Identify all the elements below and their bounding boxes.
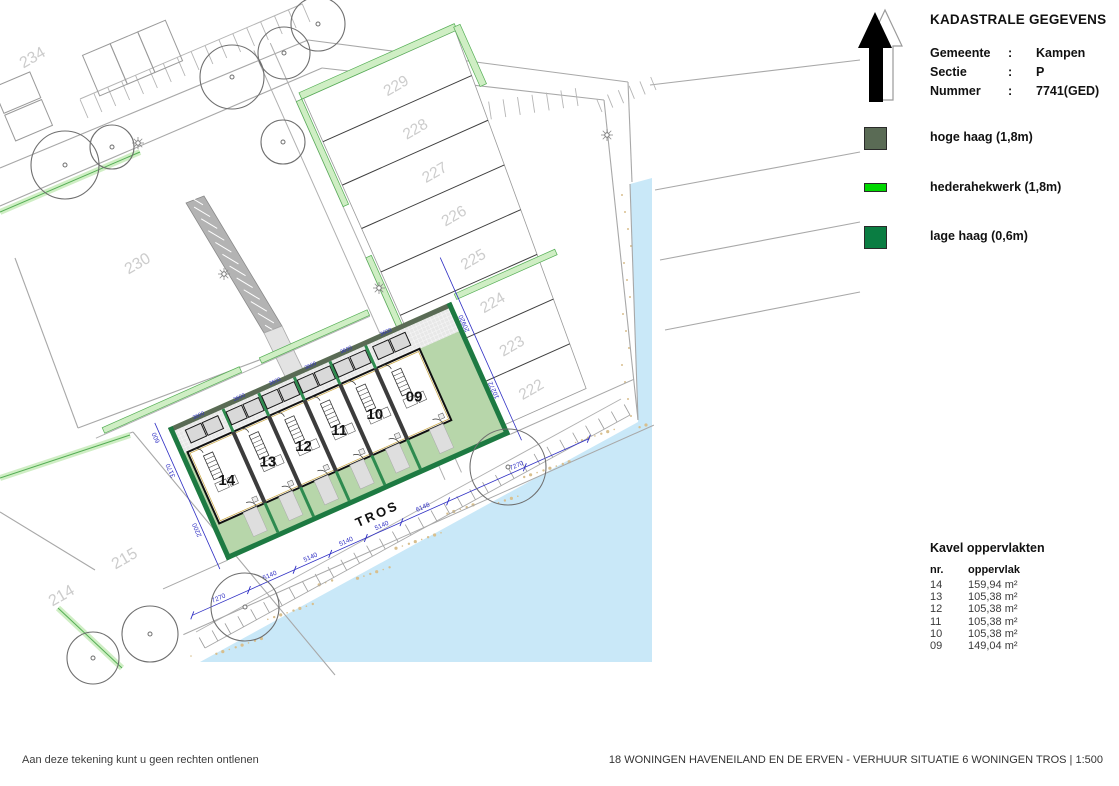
kavel-row-nr: 10 bbox=[930, 628, 942, 640]
tree-trunk-icon bbox=[243, 605, 247, 609]
kavel-row-nr: 12 bbox=[930, 603, 942, 615]
sand-dot bbox=[408, 543, 410, 545]
plan-shape bbox=[605, 133, 609, 137]
kadastrale-row-label: Sectie bbox=[930, 65, 1002, 79]
sand-dot bbox=[369, 573, 371, 575]
sand-dot bbox=[375, 570, 378, 573]
dimension-label: 7270 bbox=[509, 460, 525, 472]
sand-dot bbox=[644, 423, 647, 426]
kavel-col-nr: nr. bbox=[930, 564, 943, 576]
sand-dot bbox=[626, 279, 628, 281]
sand-dot bbox=[267, 619, 269, 621]
stall-rect bbox=[0, 72, 41, 113]
kavel-row-oppervlak: 149,04 m² bbox=[968, 640, 1018, 652]
stall-tick bbox=[274, 16, 282, 34]
sand-dot bbox=[421, 539, 423, 541]
stall-tick bbox=[651, 77, 656, 90]
plan-shape bbox=[222, 272, 226, 276]
sand-dot bbox=[235, 646, 237, 648]
sand-dot bbox=[394, 547, 397, 550]
sand-dot bbox=[298, 607, 301, 610]
site-plan-drawing: 2292282272262252242232221436001336001236… bbox=[0, 0, 870, 745]
sand-dot bbox=[536, 472, 538, 474]
parking-strip bbox=[186, 196, 282, 333]
plan-shape bbox=[377, 286, 381, 290]
quay-stall-tick bbox=[251, 609, 257, 620]
kadastrale-row-colon: : bbox=[1008, 84, 1012, 98]
sand-dot bbox=[638, 426, 640, 428]
hedge-strip-edge bbox=[0, 435, 130, 478]
dimension-label: 600 bbox=[151, 431, 162, 444]
sand-dot bbox=[248, 642, 250, 644]
stall-tick bbox=[618, 90, 623, 103]
dimension-label: 3170 bbox=[165, 462, 177, 478]
dimension-label: 6148 bbox=[415, 501, 431, 513]
kavel-row-nr: 11 bbox=[930, 616, 941, 628]
stall-tick bbox=[629, 86, 634, 99]
sand-dot bbox=[629, 296, 631, 298]
kavel-row-oppervlak: 159,94 m² bbox=[968, 579, 1018, 591]
legend-item-label: lage haag (0,6m) bbox=[930, 229, 1028, 243]
stall-tick bbox=[503, 99, 506, 117]
stall-tick bbox=[489, 102, 492, 120]
sand-dot bbox=[388, 566, 390, 568]
road-edge-line bbox=[0, 68, 322, 206]
sand-dot bbox=[630, 415, 632, 417]
stall-tick bbox=[640, 81, 645, 94]
quay-stall-tick bbox=[586, 426, 592, 437]
sand-dot bbox=[613, 429, 615, 431]
road-edge-line bbox=[628, 82, 632, 182]
sand-dot bbox=[241, 644, 244, 647]
tree-trunk-icon bbox=[91, 656, 95, 660]
sand-dot bbox=[190, 655, 192, 657]
sand-dot bbox=[562, 463, 564, 465]
quay-stall-tick bbox=[457, 496, 463, 507]
lamp-icon bbox=[218, 268, 230, 280]
kadastrale-title: KADASTRALE GEGEVENS bbox=[930, 12, 1106, 27]
sand-dot bbox=[627, 398, 629, 400]
stall-block bbox=[83, 20, 183, 96]
stall-tick bbox=[561, 90, 564, 108]
sand-dot bbox=[523, 476, 525, 478]
sand-dot bbox=[600, 433, 602, 435]
kadastrale-row-label: Nummer bbox=[930, 84, 1002, 98]
sand-dot bbox=[382, 569, 384, 571]
kadastrale-row-value: 7741(GED) bbox=[1036, 84, 1099, 98]
sand-dot bbox=[356, 577, 359, 580]
sand-dot bbox=[621, 194, 623, 196]
sand-dot bbox=[529, 473, 532, 476]
stall-block bbox=[0, 72, 52, 141]
tree-trunk-icon bbox=[281, 140, 285, 144]
tree-trunk-icon bbox=[316, 22, 320, 26]
plan-shape bbox=[136, 141, 140, 145]
stall-tick bbox=[233, 34, 241, 52]
kavel-row-oppervlak: 105,38 m² bbox=[968, 628, 1018, 640]
stall-tick bbox=[518, 97, 521, 115]
stall-tick bbox=[247, 28, 255, 46]
tree-trunk-icon bbox=[110, 145, 114, 149]
house-number: 13 bbox=[260, 454, 277, 471]
stall-tick bbox=[546, 93, 549, 111]
hoge-haag-swatch bbox=[864, 127, 887, 150]
quay-stall-tick bbox=[560, 440, 566, 451]
kadastrale-row-colon: : bbox=[1008, 65, 1012, 79]
lamp-icon bbox=[373, 282, 385, 294]
sand-dot bbox=[331, 579, 333, 581]
sand-dot bbox=[312, 603, 314, 605]
drawing-sheet: 2292282272262252242232221436001336001236… bbox=[0, 0, 1119, 786]
kadastrale-row-label: Gemeente bbox=[930, 46, 1002, 60]
stall-tick bbox=[608, 95, 613, 108]
quay-stall-tick bbox=[431, 510, 437, 521]
sand-dot bbox=[627, 228, 629, 230]
sand-dot bbox=[628, 347, 630, 349]
road-edge-line bbox=[660, 222, 860, 260]
stall-tick bbox=[80, 100, 88, 118]
road-edge-line bbox=[655, 152, 860, 190]
sand-dot bbox=[621, 364, 623, 366]
kavel-row-oppervlak: 105,38 m² bbox=[968, 591, 1018, 603]
quay-stall-tick bbox=[624, 405, 630, 416]
quay-stall-tick bbox=[238, 616, 244, 627]
road-edge-line bbox=[0, 512, 95, 570]
north-arrow-icon bbox=[845, 4, 905, 109]
road-edge-line bbox=[665, 292, 860, 330]
lamp-icon bbox=[601, 129, 613, 141]
parcel-number: 234 bbox=[17, 44, 49, 72]
kadastrale-row-value: P bbox=[1036, 65, 1044, 79]
stall-tick bbox=[136, 76, 144, 94]
quay-stall-tick bbox=[264, 602, 270, 613]
dimension-label: 5140 bbox=[262, 570, 278, 582]
dimension-tick bbox=[245, 586, 253, 594]
tree-trunk-icon bbox=[63, 163, 67, 167]
sand-dot bbox=[504, 499, 506, 501]
house-number: 14 bbox=[218, 472, 235, 489]
tree-trunk-icon bbox=[506, 465, 510, 469]
kadastrale-row-colon: : bbox=[1008, 46, 1012, 60]
sand-dot bbox=[624, 211, 626, 213]
sand-dot bbox=[517, 495, 519, 497]
sand-dot bbox=[594, 435, 596, 437]
sand-dot bbox=[306, 605, 308, 607]
stall-tick bbox=[288, 10, 296, 28]
stall-rect bbox=[5, 100, 53, 141]
kavel-row-nr: 09 bbox=[930, 640, 942, 652]
quay-stall-tick bbox=[225, 623, 231, 634]
sand-dot bbox=[221, 650, 224, 653]
kavel-row-nr: 14 bbox=[930, 579, 942, 591]
house-number: 10 bbox=[366, 406, 383, 423]
hedge-strip-edge bbox=[0, 152, 140, 212]
road-edge-line bbox=[15, 258, 78, 428]
kavel-row-nr: 13 bbox=[930, 591, 942, 603]
sand-dot bbox=[440, 532, 442, 534]
sand-dot bbox=[279, 613, 282, 616]
quay-stall-tick bbox=[302, 581, 308, 592]
quay-stall-tick bbox=[380, 539, 386, 550]
road-edge-line bbox=[650, 60, 860, 85]
sand-dot bbox=[433, 533, 436, 536]
stall-tick bbox=[597, 99, 602, 112]
kadastrale-row-value: Kampen bbox=[1036, 46, 1085, 60]
tree-trunk-icon bbox=[282, 51, 286, 55]
quay-stall-tick bbox=[573, 433, 579, 444]
sand-dot bbox=[622, 313, 624, 315]
sand-dot bbox=[623, 262, 625, 264]
stall-tick bbox=[191, 52, 199, 70]
dimension-label: 5140 bbox=[303, 551, 319, 563]
house-number: 12 bbox=[295, 438, 312, 455]
sand-dot bbox=[510, 497, 513, 500]
house-number: 09 bbox=[406, 389, 423, 406]
sand-dot bbox=[414, 540, 417, 543]
parcel-number: 230 bbox=[122, 250, 154, 278]
dimension-tick bbox=[444, 497, 452, 505]
sand-dot bbox=[273, 616, 275, 618]
kavel-col-oppervlak: oppervlak bbox=[968, 564, 1020, 576]
kavel-row-oppervlak: 105,38 m² bbox=[968, 603, 1018, 615]
tree-trunk-icon bbox=[230, 75, 234, 79]
quay-stall-tick bbox=[598, 419, 604, 430]
sand-dot bbox=[606, 430, 609, 433]
house-number: 11 bbox=[331, 422, 347, 439]
quay-stall-tick bbox=[289, 588, 295, 599]
street-edge bbox=[163, 560, 227, 588]
kavel-table-title: Kavel oppervlakten bbox=[930, 541, 1045, 555]
dimension-label: 2200 bbox=[191, 521, 203, 537]
sand-dot bbox=[363, 575, 365, 577]
hedge-strip-edge bbox=[58, 608, 122, 668]
stall-tick bbox=[260, 22, 268, 40]
dimension-tick bbox=[188, 611, 196, 619]
sand-dot bbox=[292, 609, 294, 611]
quay-stall-tick bbox=[418, 517, 424, 528]
parcel-number: 214 bbox=[46, 582, 78, 610]
sand-dot bbox=[229, 649, 231, 651]
parcel-number: 215 bbox=[109, 545, 141, 573]
sand-dot bbox=[215, 653, 217, 655]
quay-stall-tick bbox=[199, 638, 205, 649]
legend-item-label: hederahekwerk (1,8m) bbox=[930, 180, 1061, 194]
sand-dot bbox=[542, 469, 544, 471]
sand-dot bbox=[548, 467, 551, 470]
stall-tick bbox=[532, 95, 535, 113]
sand-dot bbox=[575, 442, 577, 444]
hederahekwerk-swatch bbox=[864, 183, 887, 192]
sand-dot bbox=[286, 612, 288, 614]
lamp-icon bbox=[132, 137, 144, 149]
sand-dot bbox=[625, 330, 627, 332]
stall-tick bbox=[94, 94, 102, 112]
sand-dot bbox=[427, 536, 429, 538]
tree-trunk-icon bbox=[148, 632, 152, 636]
quay-stall-tick bbox=[341, 560, 347, 571]
kavel-row-oppervlak: 105,38 m² bbox=[968, 616, 1018, 628]
stall-tick bbox=[219, 40, 227, 58]
lage-haag-swatch bbox=[864, 226, 887, 249]
sand-dot bbox=[556, 465, 558, 467]
dimension-tick bbox=[291, 566, 299, 574]
drawing-title-text: 18 WONINGEN HAVENEILAND EN DE ERVEN - VE… bbox=[609, 754, 1103, 766]
disclaimer-text: Aan deze tekening kunt u geen rechten on… bbox=[22, 754, 259, 766]
legend-item-label: hoge haag (1,8m) bbox=[930, 130, 1033, 144]
stall-tick bbox=[302, 4, 310, 22]
quay-stall-tick bbox=[212, 630, 218, 641]
sand-dot bbox=[402, 545, 404, 547]
stall-tick bbox=[177, 58, 185, 76]
quay-stall-tick bbox=[611, 412, 617, 423]
